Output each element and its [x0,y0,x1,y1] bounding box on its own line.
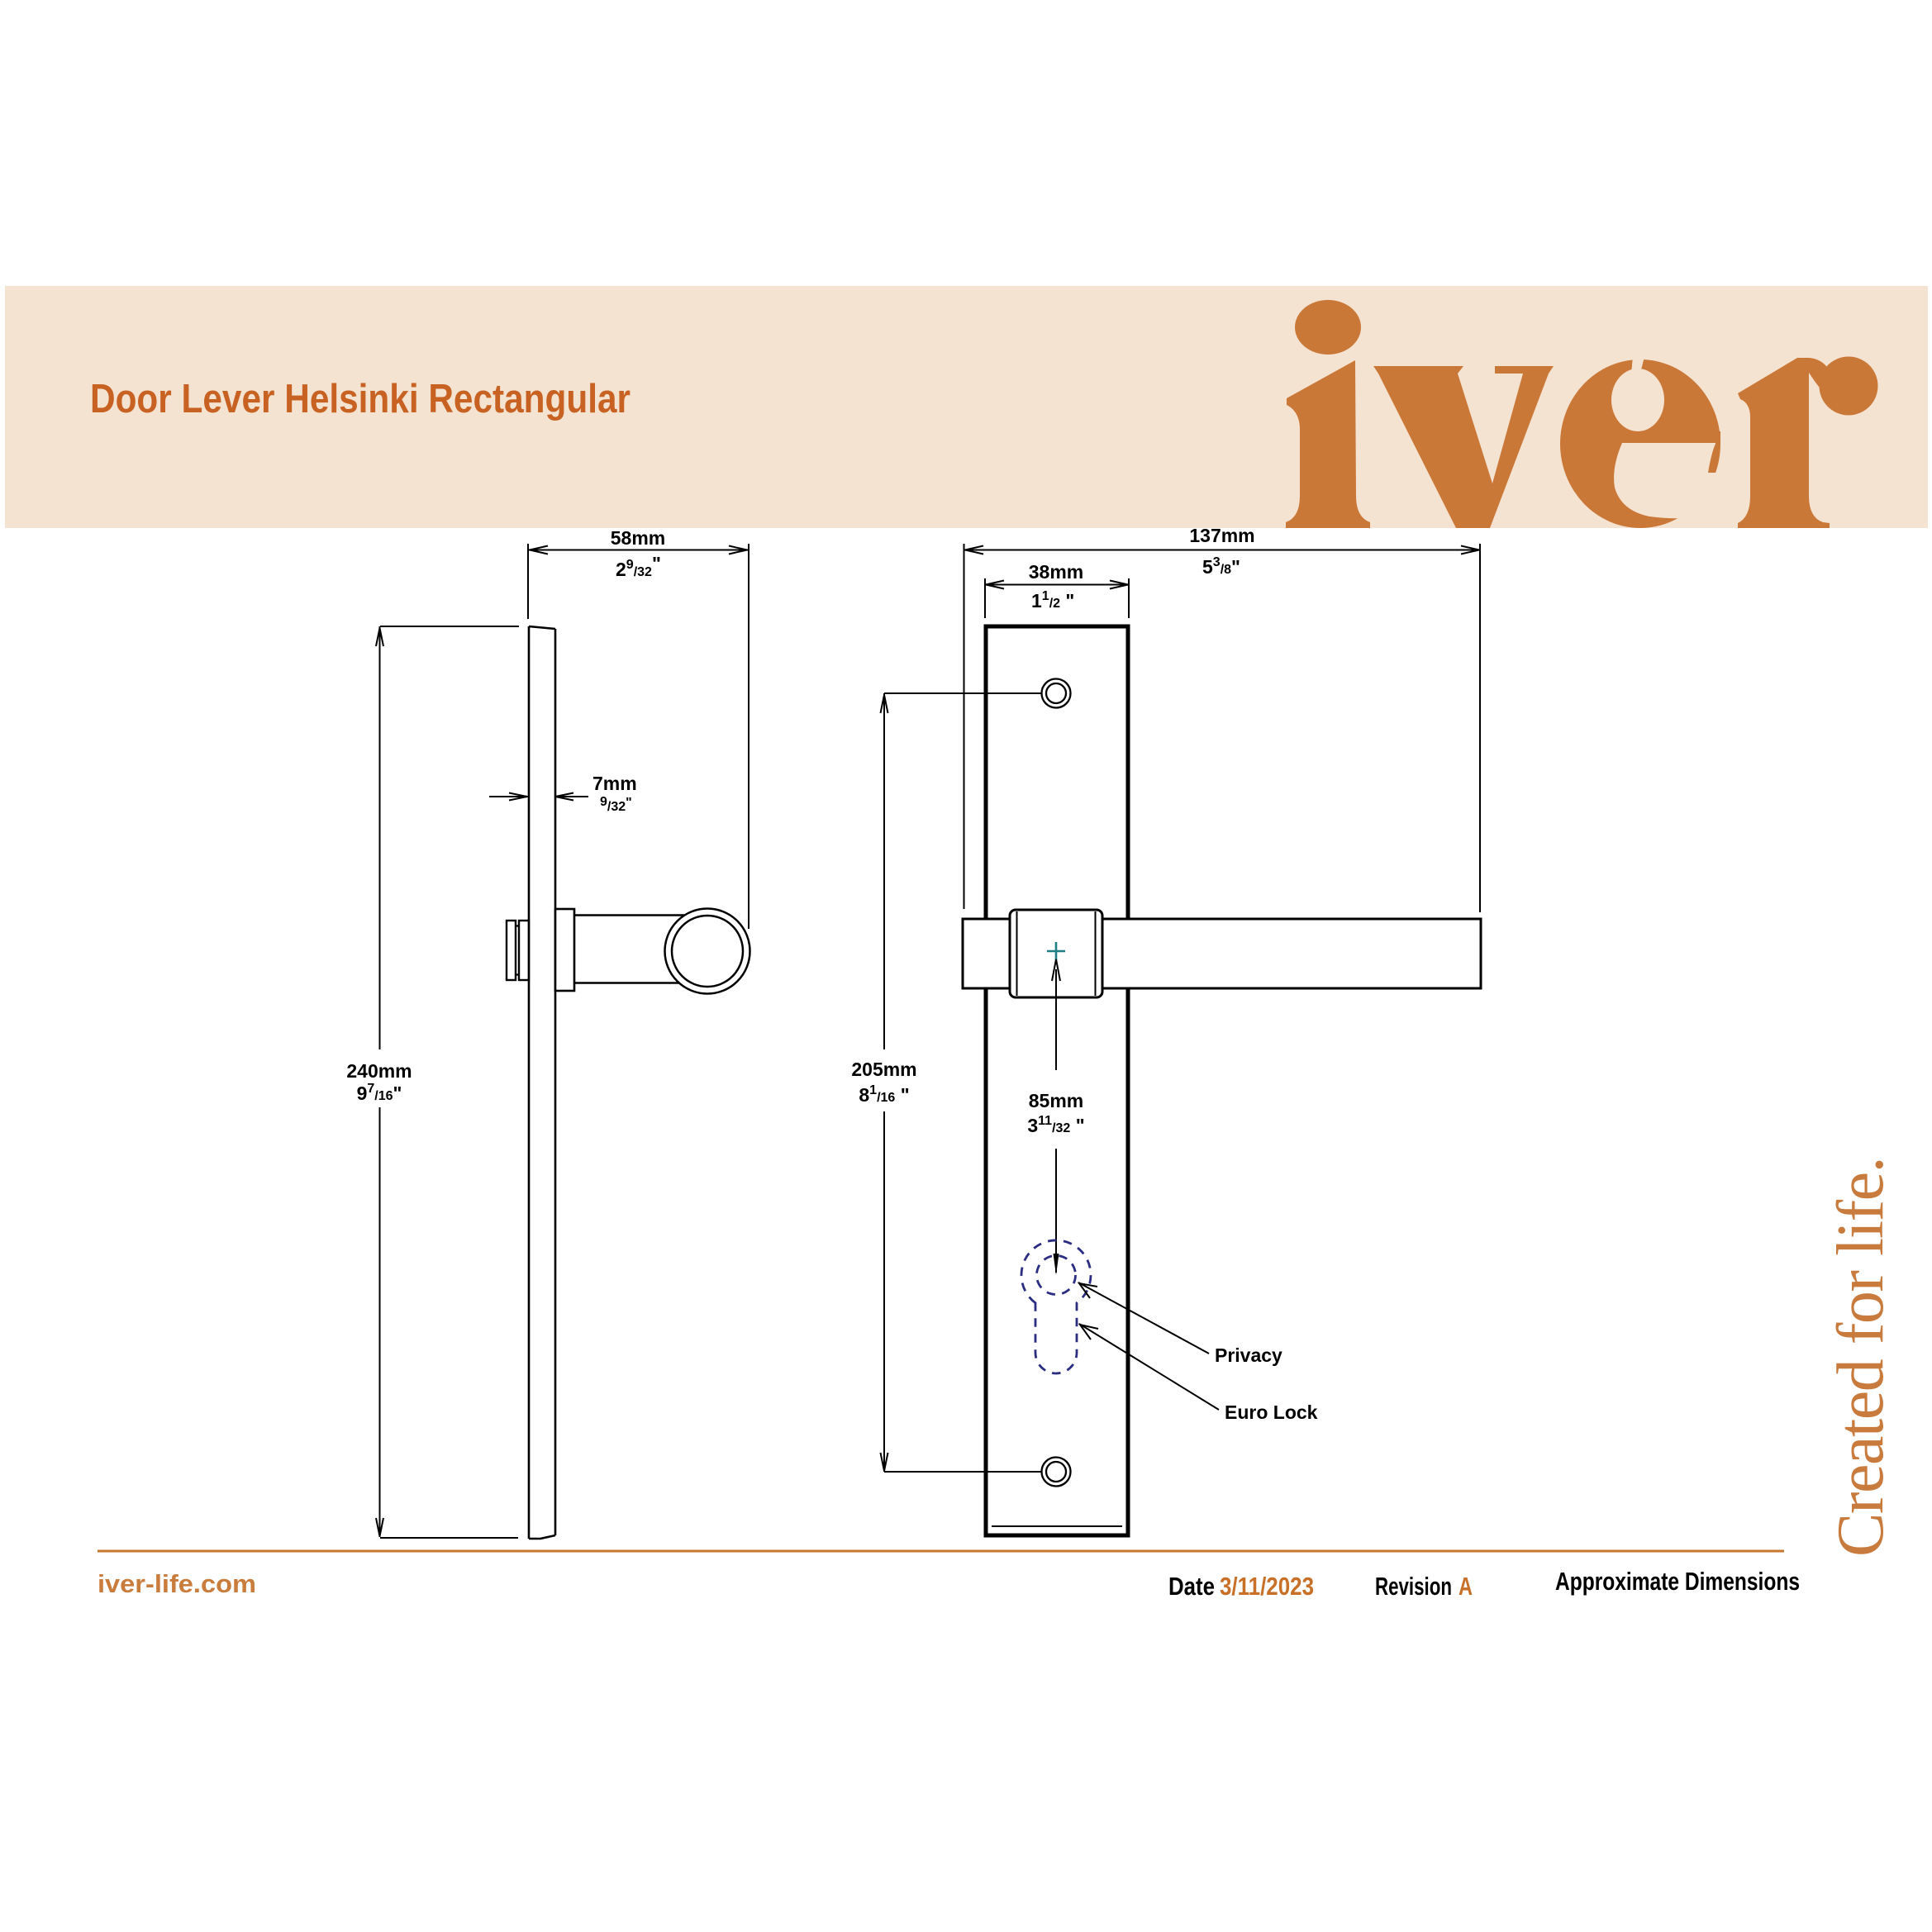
svg-text:205mm: 205mm [851,1059,916,1080]
svg-text:7mm: 7mm [592,773,637,794]
svg-text:Privacy: Privacy [1215,1344,1282,1366]
svg-text:Date: Date [1168,1572,1215,1601]
svg-text:85mm: 85mm [1029,1090,1083,1111]
svg-text:Door Lever Helsinki Rectangula: Door Lever Helsinki Rectangular [90,377,631,421]
svg-text:3/11/2023: 3/11/2023 [1220,1572,1314,1601]
svg-text:58mm: 58mm [611,527,665,549]
svg-text:A: A [1459,1572,1473,1601]
svg-text:Approximate Dimensions: Approximate Dimensions [1555,1567,1800,1596]
svg-text:Revision: Revision [1375,1572,1452,1601]
svg-text:iver-life.com: iver-life.com [98,1569,256,1598]
svg-text:240mm: 240mm [346,1060,412,1082]
svg-text:137mm: 137mm [1189,525,1254,546]
svg-text:Created for life.: Created for life. [1825,1158,1897,1557]
svg-text:38mm: 38mm [1029,561,1083,583]
svg-text:Euro Lock: Euro Lock [1225,1401,1318,1423]
